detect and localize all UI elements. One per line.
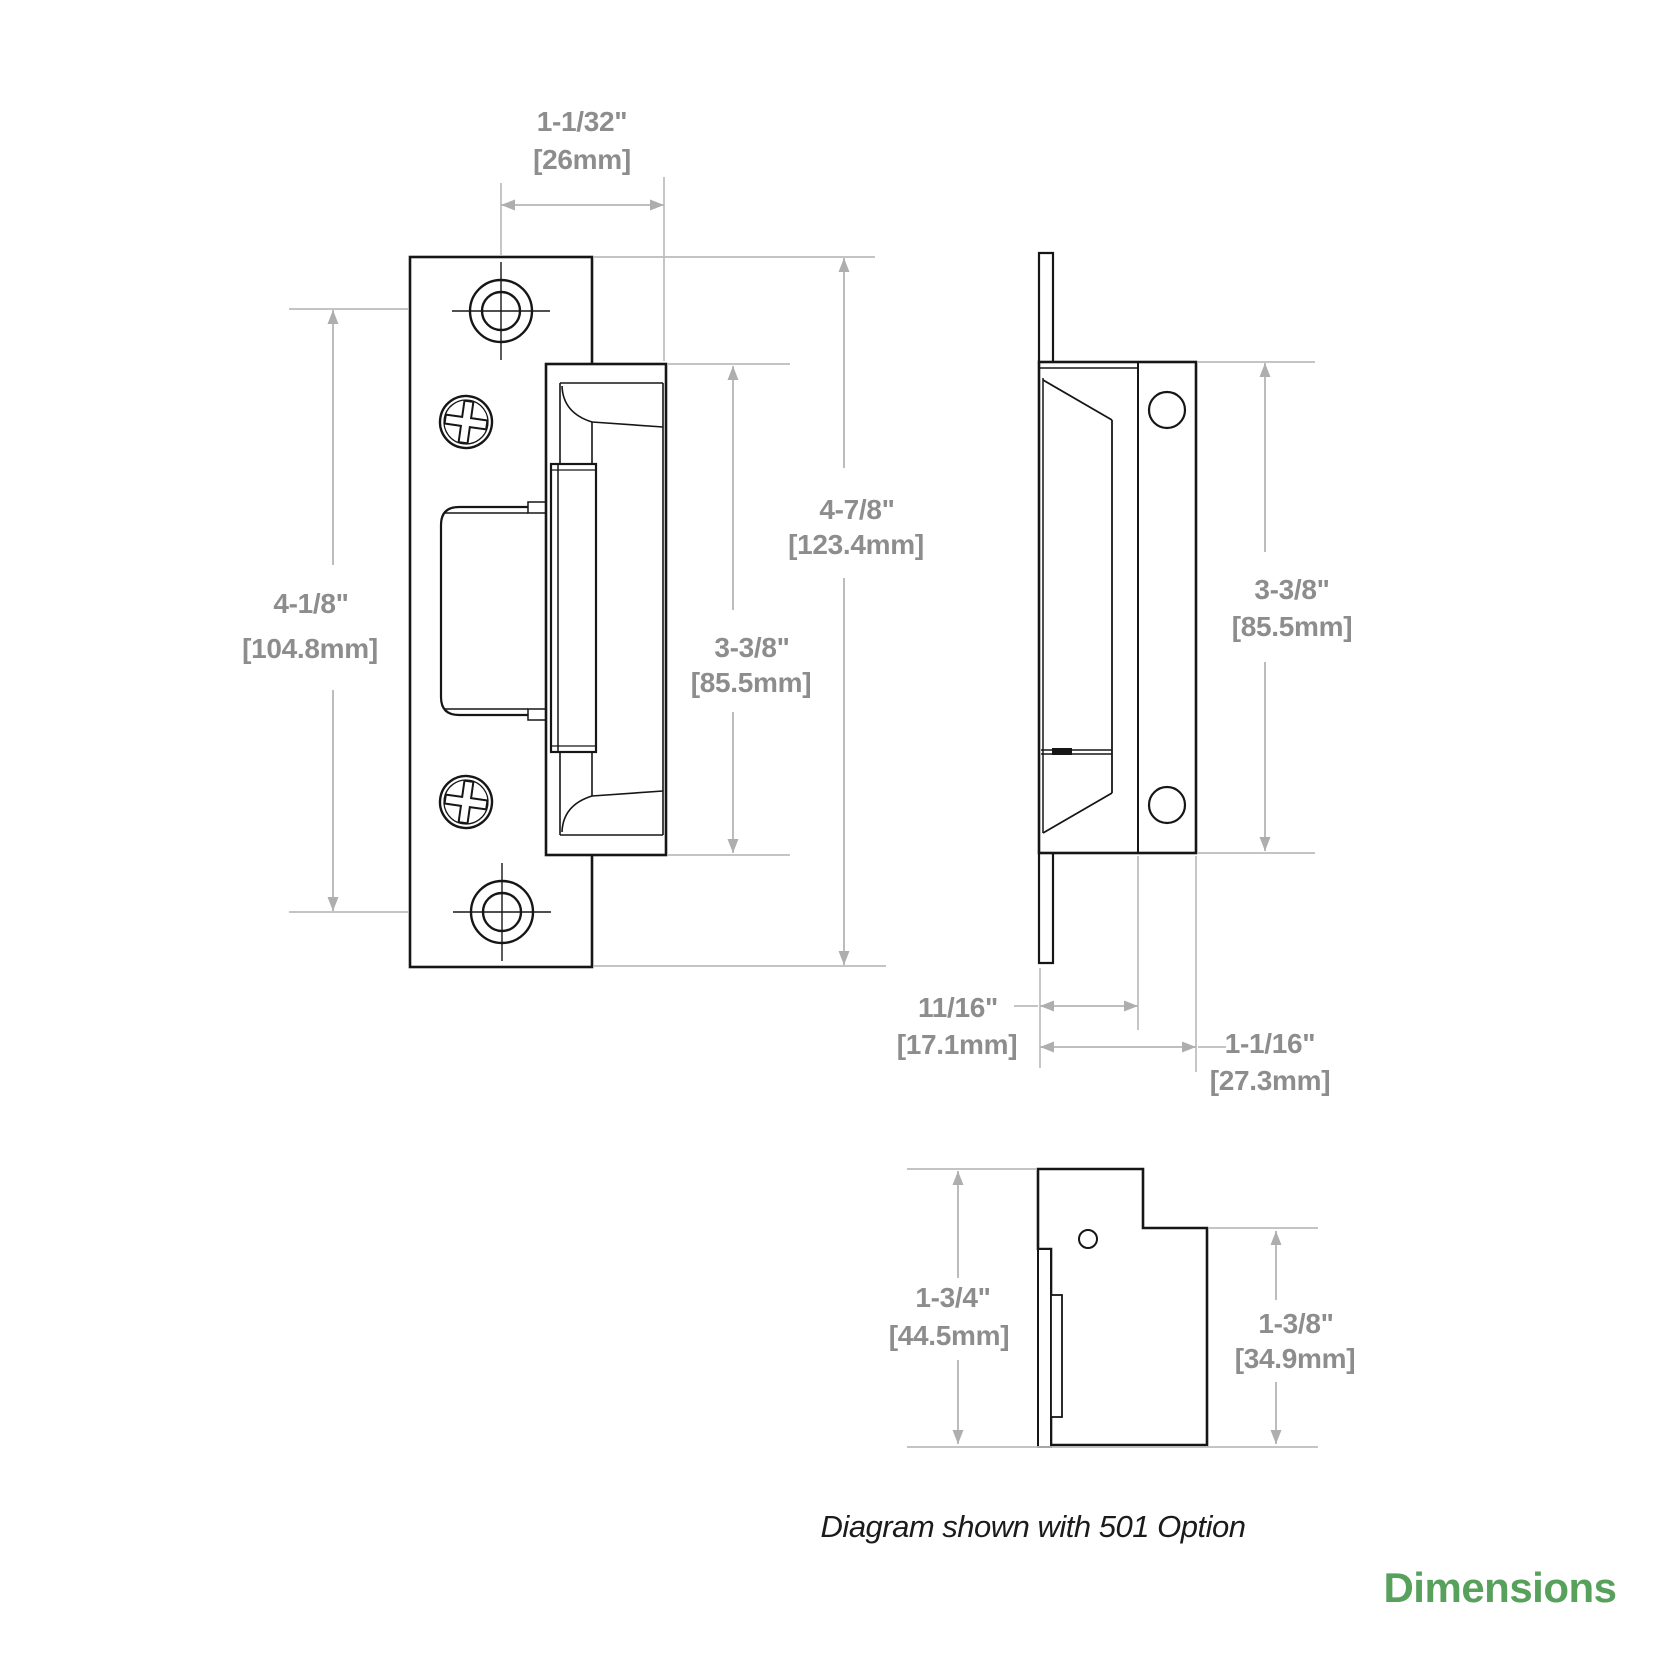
bottom-hole — [1079, 1230, 1097, 1248]
dim-front-screw-spacing-in: 4-1/8" — [273, 588, 348, 619]
dim-side-depth-inner-mm: [17.1mm] — [897, 1029, 1018, 1060]
dim-side-depth-total-mm: [27.3mm] — [1210, 1065, 1331, 1096]
side-body — [1039, 362, 1196, 853]
dim-front-body-height-mm: [85.5mm] — [691, 667, 812, 698]
dim-side-depth-inner-in: 11/16" — [918, 992, 998, 1023]
faceplate-edge-top — [1039, 253, 1053, 364]
dim-front-screw-to-edge-in: 1-1/32" — [537, 106, 628, 137]
dim-front-screw-spacing-mm: [104.8mm] — [242, 633, 378, 664]
dim-side-body-height-mm: [85.5mm] — [1232, 611, 1353, 642]
dim-front-total-height-in: 4-7/8" — [819, 494, 894, 525]
dim-bottom-total-height-mm: [44.5mm] — [889, 1320, 1010, 1351]
bottom-faceplate-edge — [1038, 1249, 1051, 1447]
dim-front-screw-to-edge-mm: [26mm] — [533, 144, 631, 175]
faceplate-edge-bottom — [1039, 853, 1053, 963]
dim-bottom-body-height-mm: [34.9mm] — [1235, 1343, 1356, 1374]
dimensions-heading: Dimensions — [1383, 1564, 1616, 1611]
caption-text: Diagram shown with 501 Option — [821, 1509, 1246, 1544]
dim-side-depth-total-in: 1-1/16" — [1225, 1028, 1316, 1059]
dimensions-diagram-page: 1-1/32" [26mm] 4-1/8" [104.8mm] 4-7/8" [… — [0, 0, 1667, 1667]
dim-bottom-total-height-in: 1-3/4" — [915, 1282, 990, 1313]
dim-front-body-height-in: 3-3/8" — [714, 632, 789, 663]
latch-cavity — [441, 507, 551, 715]
background — [0, 0, 1667, 1667]
dim-front-total-height-mm: [123.4mm] — [788, 529, 924, 560]
dim-side-body-height-in: 3-3/8" — [1254, 574, 1329, 605]
dim-bottom-body-height-in: 1-3/8" — [1258, 1308, 1333, 1339]
strike-dimensions-drawing: 1-1/32" [26mm] 4-1/8" [104.8mm] 4-7/8" [… — [0, 0, 1667, 1667]
bottom-latch-lip — [1051, 1295, 1062, 1417]
